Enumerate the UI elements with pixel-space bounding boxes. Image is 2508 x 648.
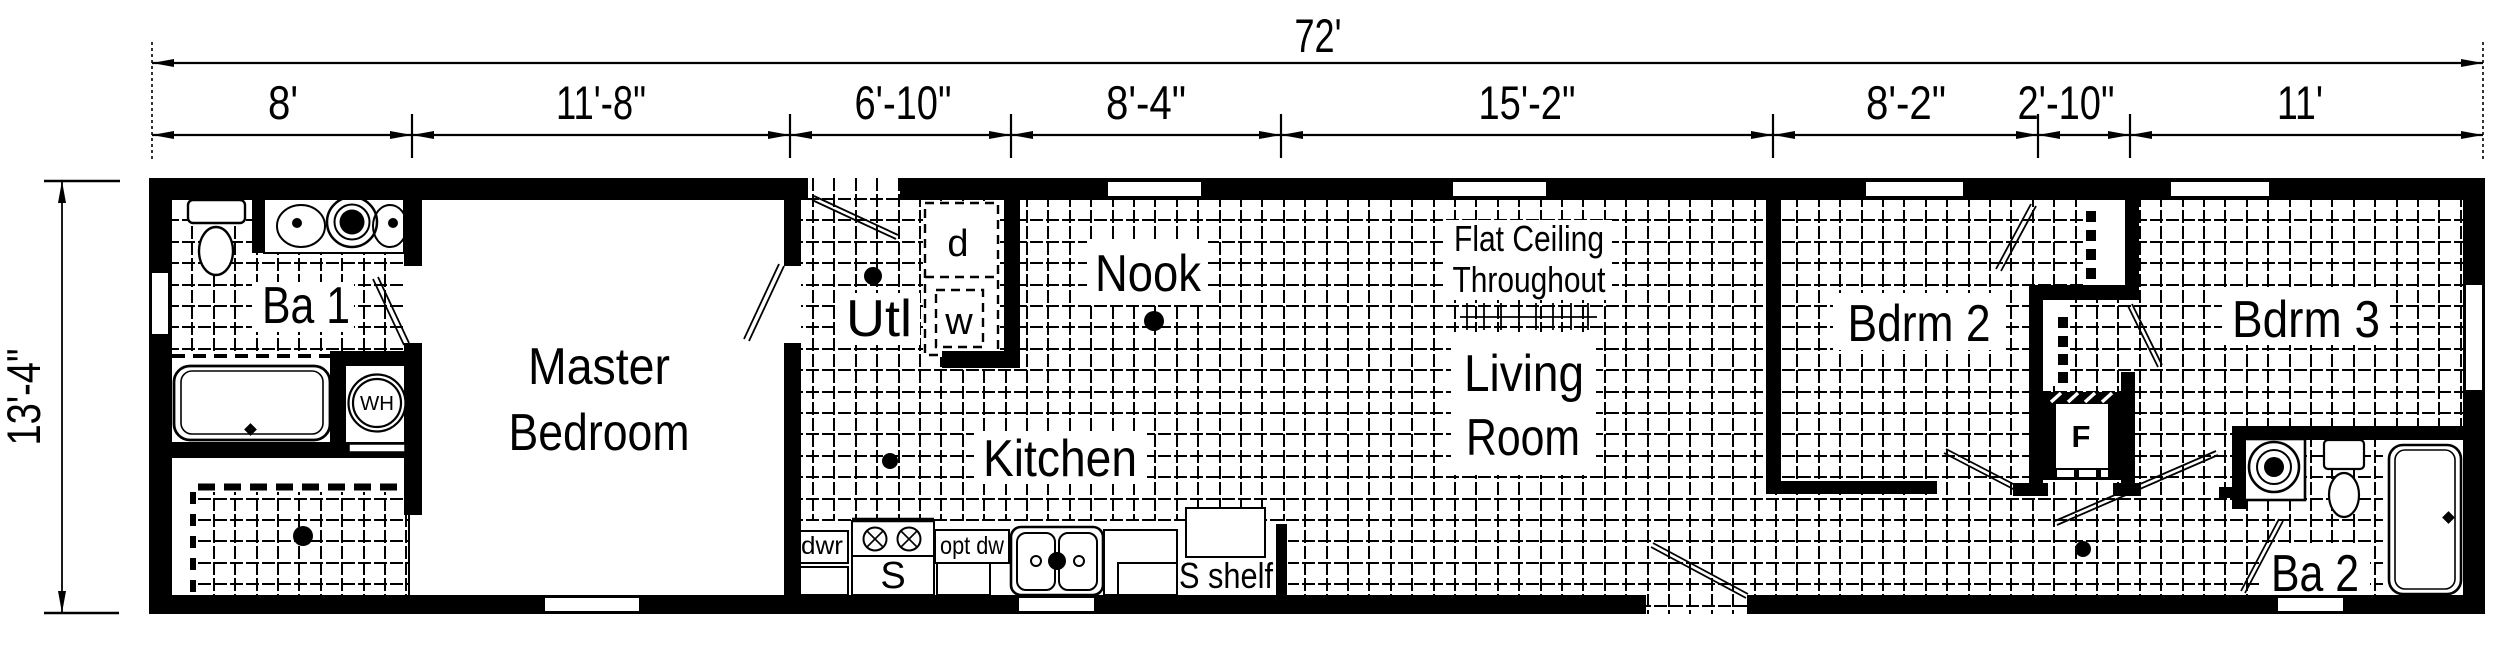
svg-text:2'-10": 2'-10" bbox=[2018, 76, 2115, 129]
svg-text:Ba 1: Ba 1 bbox=[262, 277, 350, 335]
svg-text:11'-8": 11'-8" bbox=[556, 76, 646, 129]
svg-text:11': 11' bbox=[2277, 76, 2323, 129]
svg-text:d: d bbox=[947, 223, 968, 265]
svg-text:Living: Living bbox=[1464, 345, 1584, 403]
svg-text:F: F bbox=[2072, 419, 2091, 454]
svg-text:Bdrm 2: Bdrm 2 bbox=[1848, 295, 1991, 353]
svg-text:15'-2": 15'-2" bbox=[1479, 76, 1576, 129]
svg-text:Nook: Nook bbox=[1095, 245, 1202, 303]
svg-text:Ba 2: Ba 2 bbox=[2271, 545, 2359, 603]
svg-text:72': 72' bbox=[1295, 9, 1342, 62]
svg-text:Flat Ceiling: Flat Ceiling bbox=[1454, 218, 1604, 259]
svg-text:WH: WH bbox=[360, 393, 394, 415]
svg-text:S: S bbox=[880, 555, 905, 597]
svg-text:Bdrm 3: Bdrm 3 bbox=[2232, 291, 2380, 349]
svg-text:6'-10": 6'-10" bbox=[855, 76, 952, 129]
svg-text:dwr: dwr bbox=[801, 532, 843, 560]
svg-text:w: w bbox=[944, 301, 973, 343]
svg-text:Master: Master bbox=[528, 338, 670, 396]
svg-text:8': 8' bbox=[268, 76, 298, 129]
svg-text:8'-2": 8'-2" bbox=[1866, 76, 1946, 129]
svg-text:8'-4": 8'-4" bbox=[1106, 76, 1186, 129]
svg-text:Utl: Utl bbox=[846, 290, 912, 348]
svg-text:Room: Room bbox=[1466, 409, 1580, 467]
svg-text:Bedroom: Bedroom bbox=[509, 404, 690, 462]
svg-text:opt dw: opt dw bbox=[940, 532, 1005, 560]
svg-text:S shelf: S shelf bbox=[1179, 555, 1274, 596]
svg-text:13'-4": 13'-4" bbox=[0, 349, 50, 446]
svg-text:Throughout: Throughout bbox=[1453, 259, 1606, 300]
svg-text:Kitchen: Kitchen bbox=[983, 430, 1137, 488]
